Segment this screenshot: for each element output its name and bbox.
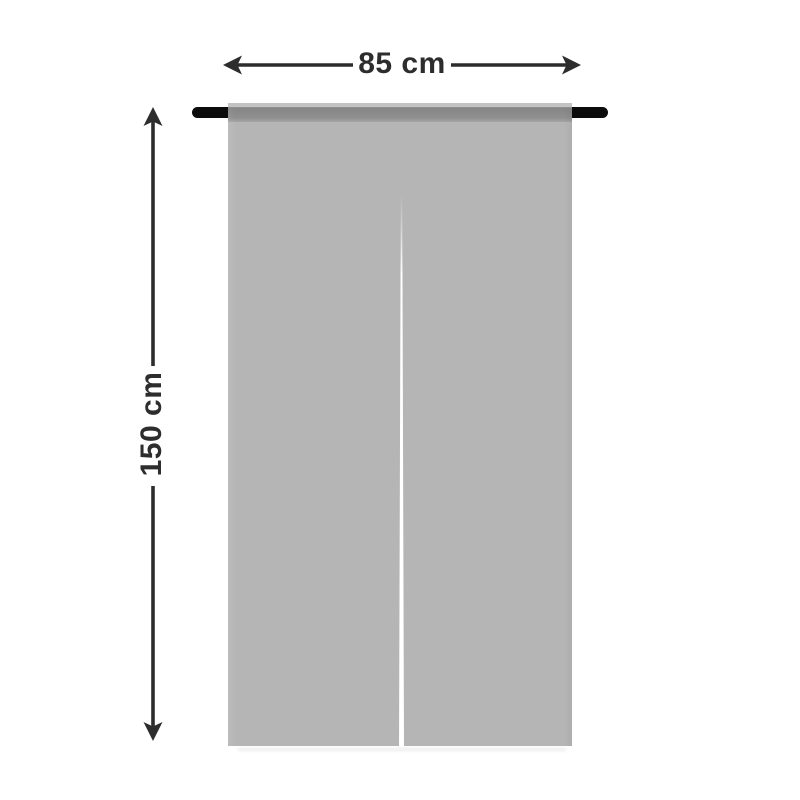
noren-curtain: [228, 103, 572, 746]
curtain-center-slit: [399, 195, 404, 746]
curtain-bottom-shadow: [238, 748, 566, 751]
rod-pocket-band: [228, 107, 572, 122]
curtain-slit-top-fade: [393, 195, 410, 275]
width-dimension-label: 85 cm: [322, 46, 482, 82]
height-dimension-label: 150 cm: [134, 344, 170, 504]
product-dimension-diagram: 85 cm 150 cm: [0, 0, 800, 800]
